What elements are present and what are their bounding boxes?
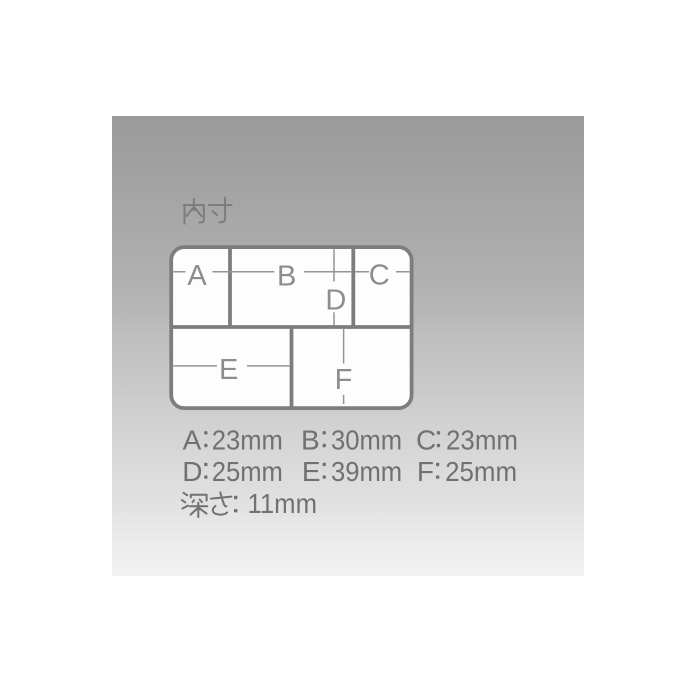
svg-text:30mm: 30mm (331, 424, 402, 455)
svg-text:25mm: 25mm (445, 456, 517, 487)
svg-text:B: B (301, 424, 320, 455)
svg-text:B: B (277, 260, 296, 292)
svg-text:39mm: 39mm (331, 456, 402, 487)
svg-text:F: F (335, 364, 353, 396)
svg-text:23mm: 23mm (446, 424, 518, 455)
svg-text:A: A (187, 260, 207, 292)
svg-text:A: A (183, 424, 202, 455)
svg-text:C: C (369, 260, 390, 292)
svg-text:D: D (182, 456, 202, 487)
svg-text:E: E (219, 354, 238, 386)
svg-text:23mm: 23mm (212, 424, 283, 455)
svg-text:11mm: 11mm (248, 488, 318, 519)
svg-text:D: D (325, 284, 346, 316)
svg-text:C: C (416, 424, 436, 455)
svg-text:25mm: 25mm (212, 456, 283, 487)
svg-text:E: E (302, 456, 321, 487)
svg-text:F: F (417, 456, 434, 487)
